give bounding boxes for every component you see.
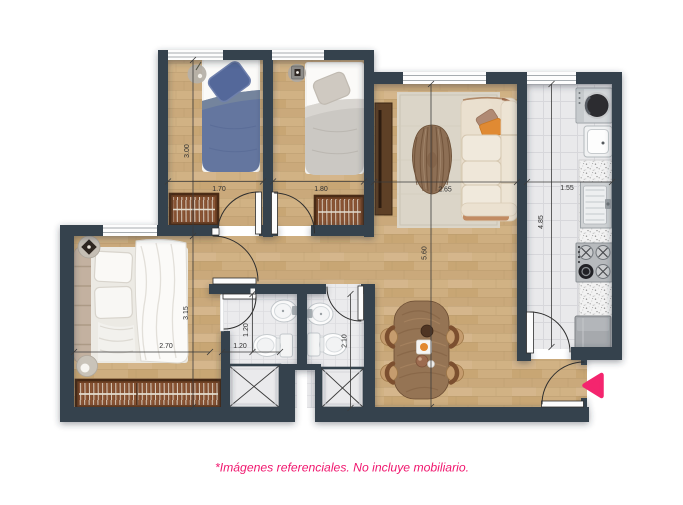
svg-text:4.85: 4.85 [538,215,545,229]
svg-text:5.60: 5.60 [422,246,429,260]
svg-text:2.65: 2.65 [438,187,452,194]
svg-text:1.20: 1.20 [233,343,247,350]
svg-text:1.55: 1.55 [560,185,574,192]
svg-text:*Imágenes referenciales. No in: *Imágenes referenciales. No incluye mobi… [215,461,469,475]
svg-text:1.70: 1.70 [212,186,226,193]
svg-text:1.80: 1.80 [314,186,328,193]
svg-text:1.20: 1.20 [243,323,250,337]
svg-text:2.10: 2.10 [342,334,349,348]
svg-text:3.15: 3.15 [183,306,190,320]
svg-text:2.70: 2.70 [159,343,173,350]
svg-text:3.00: 3.00 [184,144,191,158]
